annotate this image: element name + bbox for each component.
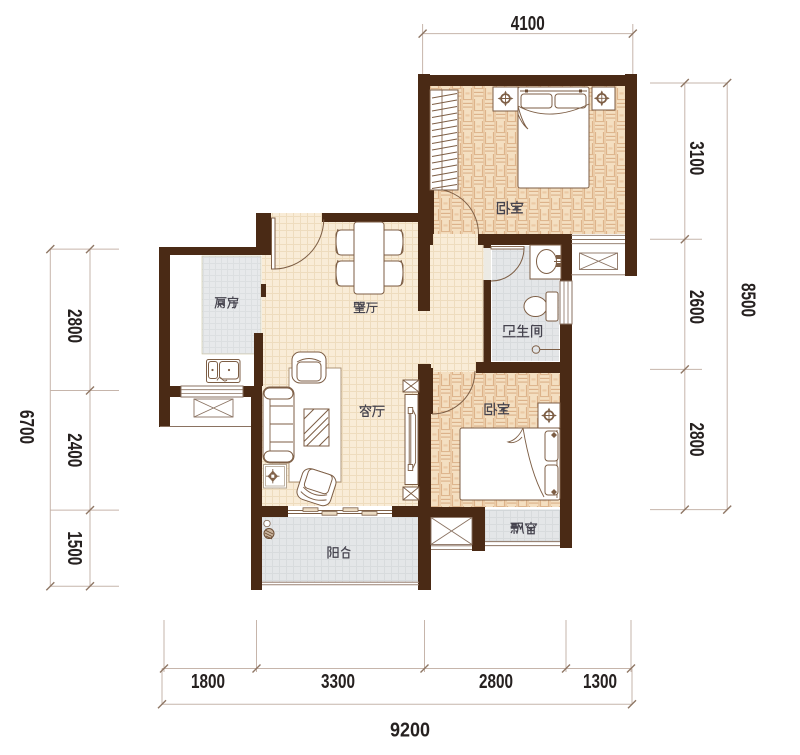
svg-text:6700: 6700 [15, 410, 38, 444]
svg-text:1800: 1800 [191, 670, 225, 693]
svg-text:1300: 1300 [583, 670, 617, 693]
svg-text:2800: 2800 [479, 670, 513, 693]
svg-text:3100: 3100 [685, 141, 708, 175]
svg-text:2800: 2800 [63, 309, 86, 343]
svg-text:2600: 2600 [685, 290, 708, 324]
svg-text:3300: 3300 [321, 670, 355, 693]
svg-text:2800: 2800 [685, 423, 708, 457]
svg-text:8500: 8500 [737, 283, 760, 317]
svg-text:9200: 9200 [390, 719, 430, 742]
svg-text:1500: 1500 [63, 531, 86, 565]
svg-text:4100: 4100 [511, 12, 545, 35]
svg-text:2400: 2400 [63, 433, 86, 467]
